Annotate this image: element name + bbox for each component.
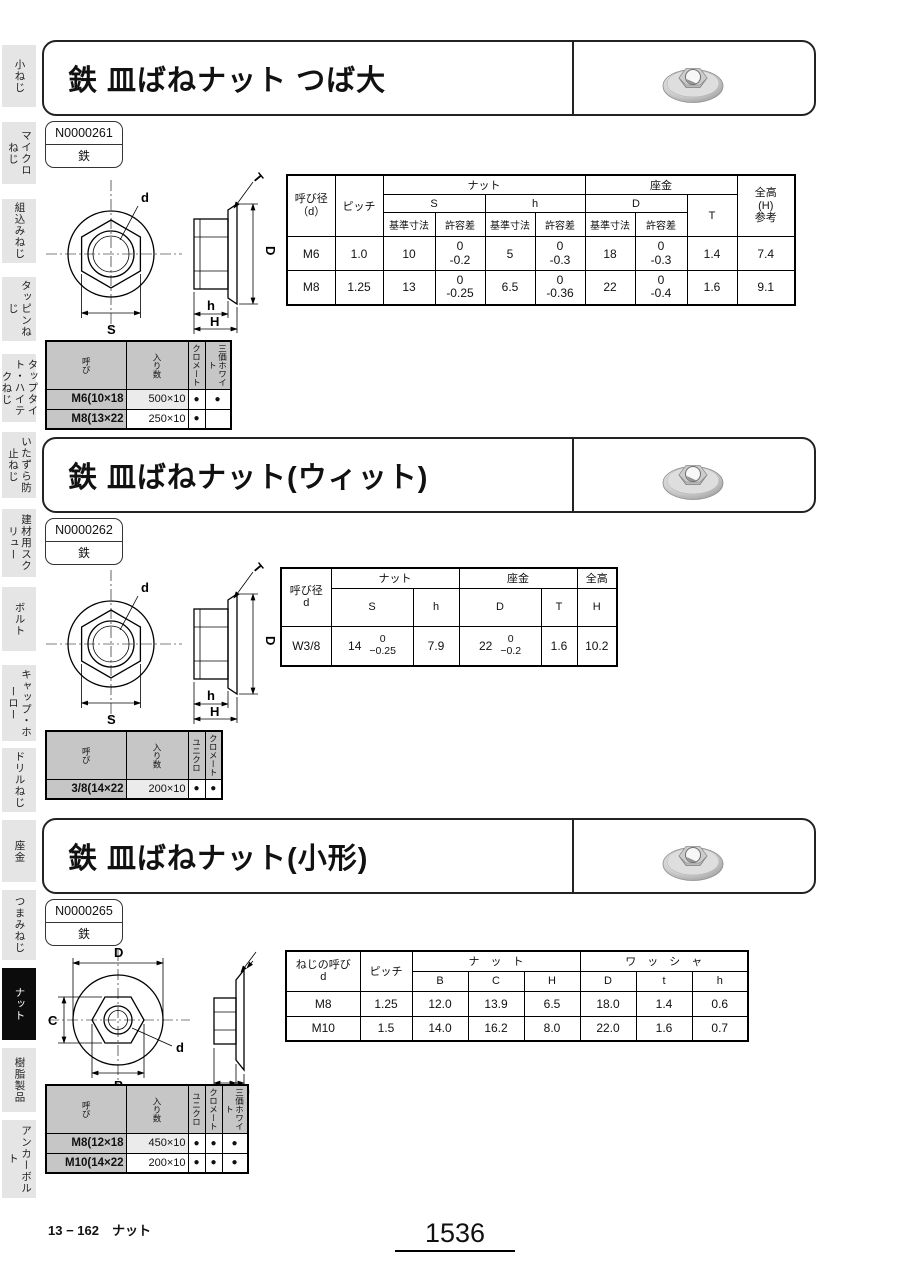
col-header-D: D: [585, 195, 687, 213]
pack-header-name: 呼び: [46, 731, 126, 779]
dim-label-H: H: [210, 314, 219, 329]
pack-size-cell: M8(13×22: [46, 409, 126, 429]
material-label: 鉄: [46, 145, 122, 166]
value-cell: 1.4: [687, 237, 737, 271]
col-header-h: h: [413, 588, 459, 626]
pack-header-qty: 入り数: [126, 1085, 188, 1133]
availability-dot: ●: [188, 779, 205, 799]
col-group-washer: ワ ッ シ ャ: [580, 951, 748, 971]
dim-label-D: D: [263, 246, 278, 255]
value-cell: 5: [485, 237, 535, 271]
value-cell: 12.0: [412, 991, 468, 1016]
size-cell: M8: [286, 991, 360, 1016]
part-number-label: N0000265 鉄: [45, 899, 123, 946]
section-header-box: 鉄 皿ばねナット(小形): [42, 818, 816, 894]
value-cell: 0 -0.4: [635, 271, 687, 305]
col-header-C: C: [468, 971, 524, 991]
pack-qty-cell: 200×10: [126, 1153, 188, 1173]
value-cell: 10.2: [577, 626, 617, 666]
dim-label-H: H: [210, 704, 219, 719]
availability-dot: ●: [188, 1153, 205, 1173]
pack-header-finish-trivalent-white: 三価ホワイト: [222, 1085, 248, 1133]
col-group-nut: ナット: [331, 568, 459, 588]
value-cell: 1.6: [541, 626, 577, 666]
col-header-basic: 基準寸法: [585, 213, 635, 237]
pack-header-finish-unichrome: ユニクロ: [188, 731, 205, 779]
pack-row: M10(14×22 200×10 ● ● ●: [46, 1153, 248, 1173]
pack-size-cell: M8(12×18: [46, 1133, 126, 1153]
col-header-H: H: [524, 971, 580, 991]
spec-row-M8: M8 1.25 12.0 13.9 6.5 18.0 1.4 0.6: [286, 991, 748, 1016]
size-cell: M6: [287, 237, 335, 271]
pack-header-finish-chromate: クロメート: [205, 1085, 222, 1133]
spec-row-M8: M8 1.25 13 0 -0.25 6.5 0 -0.36 22 0 -0.4…: [287, 271, 795, 305]
value-cell: 8.0: [524, 1016, 580, 1041]
value-cell: 1.5: [360, 1016, 412, 1041]
pack-size-cell: M10(14×22: [46, 1153, 126, 1173]
col-header-S: S: [331, 588, 413, 626]
availability-dot: [205, 409, 231, 429]
spec-row-M6: M6 1.0 10 0 -0.2 5 0 -0.3 18 0 -0.3 1.4 …: [287, 237, 795, 271]
value-cell: 6.5: [524, 991, 580, 1016]
value-cell: 18: [585, 237, 635, 271]
part-number: N0000262: [46, 519, 122, 542]
pack-table-whitworth: 呼び 入り数 ユニクロ クロメート 3/8(14×22 200×10 ● ●: [45, 730, 223, 800]
section-title: 鉄 皿ばねナット(ウィット): [68, 454, 428, 496]
pack-qty-cell: 250×10: [126, 409, 188, 429]
pack-row: M8(12×18 450×10 ● ● ●: [46, 1133, 248, 1153]
col-header-tolerance: 許容差: [535, 213, 585, 237]
section-saraba-ne-nut-whit: 鉄 皿ばねナット(ウィット) N0000262 鉄 d S: [0, 437, 900, 818]
col-header-T: T: [541, 588, 577, 626]
section-header-box: 鉄 皿ばねナット(ウィット): [42, 437, 816, 513]
pack-qty-cell: 450×10: [126, 1133, 188, 1153]
pack-size-cell: 3/8(14×22: [46, 779, 126, 799]
value-cell: 1.4: [636, 991, 692, 1016]
product-photo-nut: [660, 833, 726, 883]
pack-qty-cell: 500×10: [126, 389, 188, 409]
col-header-T: T: [687, 195, 737, 237]
value-cell: 1.6: [636, 1016, 692, 1041]
col-header-h: h: [692, 971, 748, 991]
spec-row-M10: M10 1.5 14.0 16.2 8.0 22.0 1.6 0.7: [286, 1016, 748, 1041]
col-header-D: D: [459, 588, 541, 626]
value-cell: 0 -0.3: [535, 237, 585, 271]
section-saraba-ne-nut-tsubadai: 鉄 皿ばねナット つば大 N0000261 鉄 d S: [0, 40, 900, 437]
col-group-nut: ナ ッ ト: [412, 951, 580, 971]
dim-label-d: d: [141, 190, 149, 205]
dim-label-D: D: [114, 945, 123, 960]
value-cell: 1.25: [360, 991, 412, 1016]
catalog-page: 小ねじ マイクロねじ 組込みねじ タッピンねじ タップタイト・ハイテクねじ いた…: [0, 0, 900, 1272]
col-header-t: t: [636, 971, 692, 991]
availability-dot: ●: [222, 1153, 248, 1173]
availability-dot: ●: [188, 1133, 205, 1153]
col-header-name: 呼び径 （d）: [287, 175, 335, 237]
size-cell: W3/8: [281, 626, 331, 666]
part-number: N0000261: [46, 122, 122, 145]
pack-table-kogata: 呼び 入り数 ユニクロ クロメート 三価ホワイト M8(12×18 450×10…: [45, 1084, 249, 1174]
availability-dot: ●: [205, 1133, 222, 1153]
dim-label-d: d: [141, 580, 149, 595]
value-cell: 13.9: [468, 991, 524, 1016]
col-header-pitch: ピッチ: [335, 175, 383, 237]
value-cell: 6.5: [485, 271, 535, 305]
product-photo-nut: [660, 55, 726, 105]
dim-label-S: S: [107, 322, 116, 337]
pack-header-name: 呼び: [46, 1085, 126, 1133]
availability-dot: ●: [188, 389, 205, 409]
size-cell: M8: [287, 271, 335, 305]
spec-row-W38: W3/8 14 0 −0.25 7.9 22 0 −0.2 1.6 10.2: [281, 626, 617, 666]
pack-qty-cell: 200×10: [126, 779, 188, 799]
pack-row: M6(10×18 500×10 ● ●: [46, 389, 231, 409]
col-header-tolerance: 許容差: [635, 213, 687, 237]
dim-label-h: h: [207, 688, 215, 703]
page-number: 1536: [395, 1218, 515, 1252]
section-title: 鉄 皿ばねナット(小形): [68, 835, 368, 877]
col-header-tolerance: 許容差: [435, 213, 485, 237]
pack-size-cell: M6(10×18: [46, 389, 126, 409]
material-label: 鉄: [46, 923, 122, 944]
value-cell: 7.4: [737, 237, 795, 271]
technical-drawing-front-side: d S T D h H: [44, 166, 279, 338]
value-cell: 0 -0.36: [535, 271, 585, 305]
section-title: 鉄 皿ばねナット つば大: [68, 57, 386, 99]
col-header-total-height: 全高: [577, 568, 617, 588]
col-group-washer: 座金: [585, 175, 737, 195]
col-header-pitch: ピッチ: [360, 951, 412, 991]
value-cell: 1.0: [335, 237, 383, 271]
col-header-D: D: [580, 971, 636, 991]
part-number-label: N0000261 鉄: [45, 121, 123, 168]
col-header-S: S: [383, 195, 485, 213]
pack-header-qty: 入り数: [126, 731, 188, 779]
col-group-nut: ナット: [383, 175, 585, 195]
value-cell: 14 0 −0.25: [331, 626, 413, 666]
product-photo-nut: [660, 452, 726, 502]
value-cell: 0 -0.2: [435, 237, 485, 271]
dim-label-h: h: [207, 298, 215, 313]
value-cell: 0 -0.25: [435, 271, 485, 305]
value-cell: 22 0 −0.2: [459, 626, 541, 666]
availability-dot: ●: [205, 779, 222, 799]
dim-label-D: D: [263, 636, 278, 645]
pack-header-finish-trivalent-white: 三価ホワイト: [205, 341, 231, 389]
section-saraba-ne-nut-kogata: 鉄 皿ばねナット(小形) N0000265 鉄 D C B: [0, 818, 900, 1170]
value-cell: 0 -0.3: [635, 237, 687, 271]
col-header-H: H: [577, 588, 617, 626]
dim-label-d: d: [176, 1040, 184, 1055]
availability-dot: ●: [205, 389, 231, 409]
footer-catalog-ref: 13 − 162 ナット: [48, 1220, 151, 1239]
col-header-name: 呼び径 d: [281, 568, 331, 626]
value-cell: 22: [585, 271, 635, 305]
pack-header-qty: 入り数: [126, 341, 188, 389]
value-cell: 22.0: [580, 1016, 636, 1041]
availability-dot: ●: [222, 1133, 248, 1153]
technical-drawing-front-side: d S T D h H: [44, 556, 279, 728]
value-cell: 7.9: [413, 626, 459, 666]
dim-label-C: C: [48, 1013, 58, 1028]
value-cell: 9.1: [737, 271, 795, 305]
part-number: N0000265: [46, 900, 122, 923]
spec-table-tsubadai: 呼び径 （d） ピッチ ナット 座金 全高 (H) 参考 S h D T 基準寸…: [286, 174, 796, 306]
value-cell: 13: [383, 271, 435, 305]
technical-drawing-front-side: D C B d H h: [40, 942, 285, 1094]
col-header-total-height: 全高 (H) 参考: [737, 175, 795, 237]
pack-table-tsubadai: 呼び 入り数 クロメート 三価ホワイト M6(10×18 500×10 ● ● …: [45, 340, 232, 430]
availability-dot: ●: [188, 409, 205, 429]
pack-row: M8(13×22 250×10 ●: [46, 409, 231, 429]
header-divider: [572, 819, 574, 893]
col-header-name: ねじの呼び d: [286, 951, 360, 991]
value-cell: 10: [383, 237, 435, 271]
pack-header-finish-chromate: クロメート: [188, 341, 205, 389]
value-cell: 18.0: [580, 991, 636, 1016]
col-group-washer: 座金: [459, 568, 577, 588]
value-cell: 0.7: [692, 1016, 748, 1041]
col-header-B: B: [412, 971, 468, 991]
dim-label-S: S: [107, 712, 116, 727]
spec-table-kogata: ねじの呼び d ピッチ ナ ッ ト ワ ッ シ ャ B C H D t h M8…: [285, 950, 749, 1042]
value-cell: 0.6: [692, 991, 748, 1016]
col-header-h: h: [485, 195, 585, 213]
pack-header-name: 呼び: [46, 341, 126, 389]
availability-dot: ●: [205, 1153, 222, 1173]
pack-header-finish-unichrome: ユニクロ: [188, 1085, 205, 1133]
pack-header-finish-chromate: クロメート: [205, 731, 222, 779]
col-header-basic: 基準寸法: [485, 213, 535, 237]
value-cell: 1.25: [335, 271, 383, 305]
value-cell: 1.6: [687, 271, 737, 305]
value-cell: 16.2: [468, 1016, 524, 1041]
pack-row: 3/8(14×22 200×10 ● ●: [46, 779, 222, 799]
spec-table-whitworth: 呼び径 d ナット 座金 全高 S h D T H W3/8 14 0 −0.2…: [280, 567, 618, 667]
col-header-basic: 基準寸法: [383, 213, 435, 237]
header-divider: [572, 41, 574, 115]
value-cell: 14.0: [412, 1016, 468, 1041]
header-divider: [572, 438, 574, 512]
section-header-box: 鉄 皿ばねナット つば大: [42, 40, 816, 116]
size-cell: M10: [286, 1016, 360, 1041]
